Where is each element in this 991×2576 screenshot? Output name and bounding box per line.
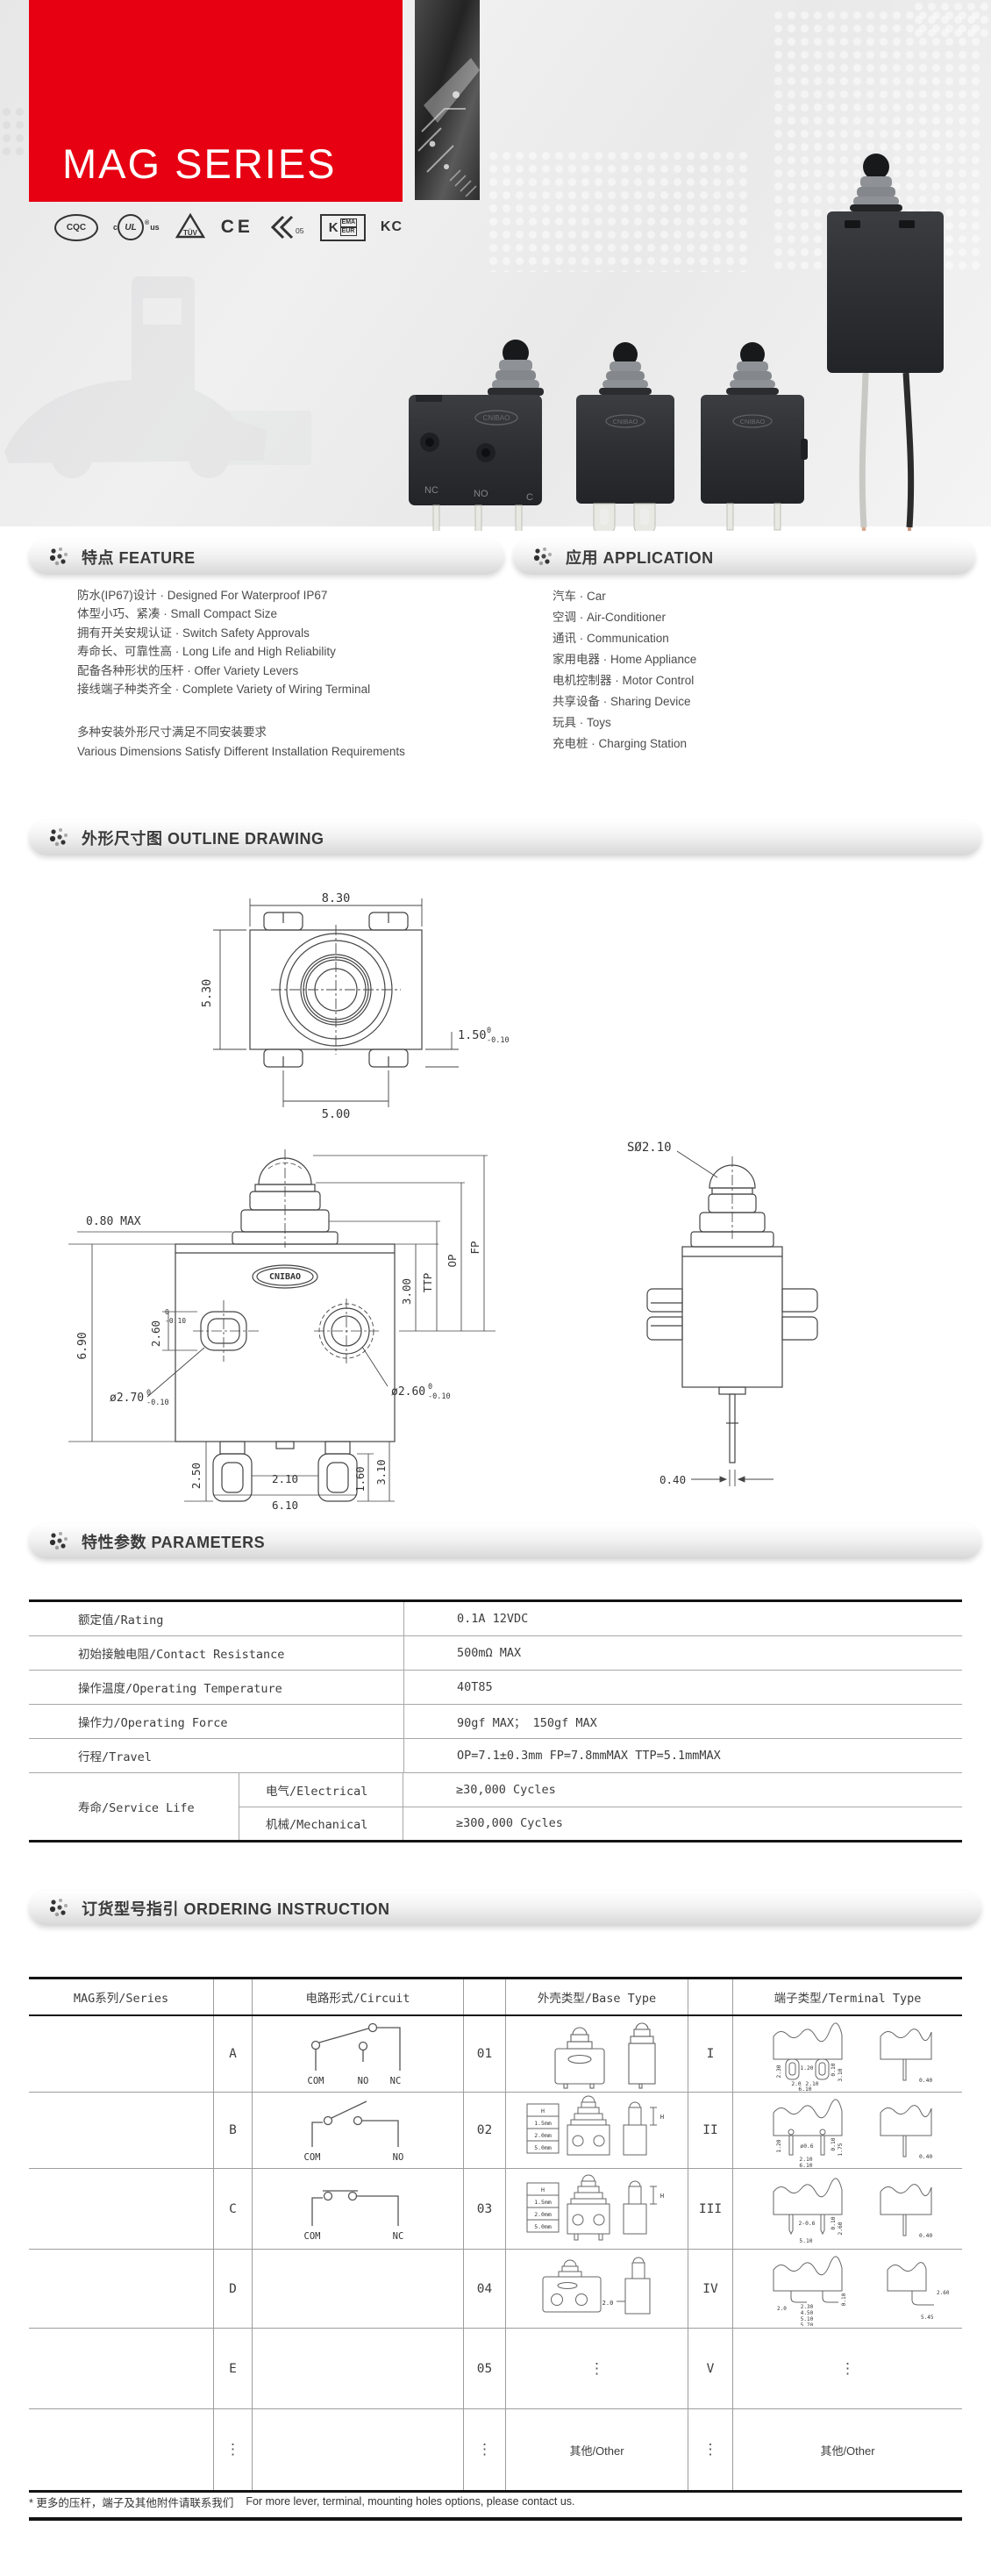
- svg-text:CNIBAO: CNIBAO: [269, 1272, 301, 1282]
- svg-text:1.5mm: 1.5mm: [534, 2120, 552, 2127]
- feature-note: 多种安装外形尺寸满足不同安装要求 Various Dimensions Sati…: [77, 723, 405, 762]
- svg-text:2.50: 2.50: [189, 1463, 203, 1489]
- parameters-table: 额定值/Rating 0.1A 12VDC 初始接触电阻/Contact Res…: [29, 1599, 962, 1843]
- svg-text:-0.10: -0.10: [146, 1399, 169, 1407]
- svg-text:0.40: 0.40: [919, 2078, 932, 2084]
- svg-text:-0.10: -0.10: [165, 1317, 186, 1325]
- application-item: 汽车 · Car: [553, 586, 696, 607]
- svg-text:2.0mm: 2.0mm: [534, 2211, 552, 2218]
- svg-text:NO: NO: [474, 489, 488, 499]
- svg-text:5.30: 5.30: [200, 979, 214, 1008]
- svg-text:SØ2.10: SØ2.10: [627, 1141, 672, 1155]
- kema-keur-logo-icon: K EMAEUR: [320, 214, 366, 241]
- svg-text:5.0mm: 5.0mm: [534, 2223, 552, 2230]
- svg-text:2.0mm: 2.0mm: [534, 2132, 552, 2139]
- svg-text:0.10: 0.10: [831, 2063, 837, 2076]
- svg-text:0: 0: [428, 1383, 432, 1392]
- svg-text:C: C: [526, 492, 533, 503]
- svg-text:2.30: 2.30: [800, 2304, 813, 2310]
- certification-logos: CQC c UL ® us TÜV CE 05 K EMAEUR: [54, 211, 403, 243]
- section-dots-icon: [48, 826, 71, 849]
- svg-text:0.40: 0.40: [659, 1473, 686, 1486]
- svg-text:2.0: 2.0: [602, 2300, 613, 2307]
- svg-text:5.10: 5.10: [800, 2316, 813, 2322]
- svg-text:CNIBAO: CNIBAO: [483, 414, 510, 422]
- faded-background-art: [0, 263, 377, 526]
- base-type-02-drawing: H 1.5mm 2.0mm 5.0mm H: [518, 2095, 676, 2165]
- terminal-type-3-drawing: 2-0.6 0.10 2.60 5.10 0.40: [747, 2172, 949, 2246]
- svg-text:5.10: 5.10: [799, 2238, 812, 2244]
- section-header-ordering: 订货型号指引 ORDERING INSTRUCTION: [29, 1891, 981, 1926]
- application-item: 通讯 · Communication: [553, 628, 696, 649]
- svg-text:05: 05: [296, 226, 304, 235]
- svg-text:-0.10: -0.10: [487, 1036, 510, 1045]
- svg-text:5.00: 5.00: [322, 1107, 351, 1121]
- svg-text:NO: NO: [393, 2152, 404, 2163]
- outline-side-view: SØ2.10 0.40: [579, 1125, 895, 1506]
- section-dots-icon: [48, 546, 71, 569]
- application-item: 共享设备 · Sharing Device: [553, 691, 696, 712]
- feature-item: 接线端子种类齐全 · Complete Variety of Wiring Te…: [77, 680, 370, 698]
- svg-text:COM: COM: [304, 2231, 321, 2242]
- base-type-01-drawing: [518, 2019, 676, 2089]
- ordering-row-a: A COM NO NC 01: [29, 2016, 962, 2093]
- outline-title: 外形尺寸图 OUTLINE DRAWING: [82, 826, 324, 849]
- ordering-title: 订货型号指引 ORDERING INSTRUCTION: [82, 1897, 390, 1920]
- ce-logo-icon: CE: [221, 217, 253, 238]
- svg-text:5.70: 5.70: [800, 2322, 813, 2326]
- section-header-feature: 特点 FEATURE: [29, 540, 504, 575]
- svg-text:4.50: 4.50: [800, 2310, 813, 2316]
- feature-list: 防水(IP67)设计 · Designed For Waterproof IP6…: [77, 586, 370, 698]
- svg-text:6.90: 6.90: [76, 1332, 89, 1359]
- feature-item: 拥有开关安规认证 · Switch Safety Approvals: [77, 624, 370, 642]
- svg-text:1.5mm: 1.5mm: [534, 2199, 552, 2206]
- svg-text:COM: COM: [304, 2152, 321, 2163]
- svg-text:3.00: 3.00: [400, 1278, 413, 1305]
- svg-text:8.30: 8.30: [322, 891, 351, 905]
- svg-text:H: H: [659, 2114, 663, 2121]
- param-row-travel: 行程/Travel OP=7.1±0.3mm FP=7.8mmMAX TTP=5…: [29, 1739, 962, 1773]
- ordering-row-d: D 04 2.0 IV: [29, 2250, 962, 2329]
- parameters-title: 特性参数 PARAMETERS: [82, 1530, 265, 1553]
- svg-text:2-0.6: 2-0.6: [798, 2221, 815, 2227]
- ordering-row-e: E 05 ⋮ V ⋮: [29, 2329, 962, 2409]
- feature-item: 体型小巧、紧凑 · Small Compact Size: [77, 605, 370, 623]
- header-band: MAG SERIES CQC: [0, 0, 991, 526]
- svg-text:0.10: 0.10: [831, 2216, 837, 2229]
- svg-text:1.20: 1.20: [800, 2065, 813, 2072]
- svg-text:ø2.60: ø2.60: [391, 1385, 425, 1399]
- cqc-logo-icon: CQC: [54, 214, 98, 241]
- param-row-service-life: 寿命/Service Life 电气/Electrical ≥30,000 Cy…: [29, 1773, 962, 1840]
- svg-text:6.10: 6.10: [798, 2086, 811, 2091]
- svg-text:NC: NC: [390, 2076, 402, 2086]
- svg-text:0.10: 0.10: [841, 2293, 847, 2306]
- svg-text:5.0mm: 5.0mm: [534, 2144, 552, 2151]
- svg-text:2.60: 2.60: [149, 1320, 162, 1347]
- svg-text:-0.10: -0.10: [428, 1392, 451, 1401]
- svg-text:1.50: 1.50: [458, 1028, 487, 1042]
- svg-text:2.60: 2.60: [937, 2290, 949, 2296]
- ordering-header-row: MAG系列/Series 电路形式/Circuit 外壳类型/Base Type…: [29, 1979, 962, 2016]
- service-life-mechanical: 机械/Mechanical ≥300,000 Cycles: [239, 1807, 962, 1841]
- product-photos: CNIBAO NC NO C: [377, 140, 956, 531]
- param-row-rating: 额定值/Rating 0.1A 12VDC: [29, 1602, 962, 1636]
- switch-photo-4: [827, 154, 944, 531]
- svg-text:6.10: 6.10: [799, 2163, 812, 2167]
- terminal-type-1-drawing: 2.30 1.20 0.10 3.10 2.0 2.10 6.10 0.40: [747, 2017, 949, 2091]
- svg-text:NC: NC: [393, 2231, 404, 2242]
- ordering-row-b: B COM NO 02: [29, 2093, 962, 2169]
- svg-text:1.20: 1.20: [776, 2139, 782, 2152]
- svg-text:0.40: 0.40: [919, 2154, 932, 2160]
- section-header-outline: 外形尺寸图 OUTLINE DRAWING: [29, 820, 981, 855]
- feature-title: 特点 FEATURE: [82, 546, 196, 569]
- svg-text:0: 0: [487, 1027, 491, 1035]
- svg-text:NO: NO: [358, 2076, 369, 2086]
- svg-text:5.45: 5.45: [921, 2315, 934, 2321]
- base-type-03-drawing: H 1.5mm 2.0mm 5.0mm H: [518, 2174, 676, 2244]
- emark-logo-icon: 05: [268, 214, 305, 240]
- switch-photo-2: CNIBAO: [576, 342, 674, 531]
- ul-logo-icon: c UL ® us: [113, 214, 160, 240]
- footer-note: * 更多的压杆，端子及其他附件请联系我们 For more lever, ter…: [29, 2486, 962, 2521]
- terminal-type-2-drawing: 1.20 ø0.6 0.10 1.75 2.10 6.10 0.40: [747, 2093, 949, 2167]
- svg-text:0: 0: [165, 1308, 169, 1316]
- application-list: 汽车 · Car 空调 · Air-Conditioner 通讯 · Commu…: [553, 586, 696, 755]
- application-item: 家用电器 · Home Appliance: [553, 649, 696, 670]
- svg-text:3.10: 3.10: [375, 1460, 388, 1485]
- outline-front-view: CNIBAO 0.80 MAX 6.90 2.60 0 -0.10 ø2.70 …: [61, 1134, 500, 1513]
- feature-item: 防水(IP67)设计 · Designed For Waterproof IP6…: [77, 586, 370, 605]
- svg-text:TTP: TTP: [421, 1273, 434, 1293]
- svg-text:6.10: 6.10: [272, 1499, 298, 1512]
- ordering-table: MAG系列/Series 电路形式/Circuit 外壳类型/Base Type…: [29, 1977, 962, 2493]
- svg-text:0.40: 0.40: [919, 2233, 932, 2239]
- svg-text:1.75: 1.75: [838, 2143, 844, 2156]
- svg-text:H: H: [541, 2186, 545, 2193]
- application-title: 应用 APPLICATION: [566, 546, 714, 569]
- switch-photo-1: CNIBAO NC NO C: [409, 340, 544, 531]
- svg-text:1.60: 1.60: [354, 1467, 367, 1492]
- param-row-operating-temperature: 操作温度/Operating Temperature 40T85: [29, 1671, 962, 1705]
- param-row-contact-resistance: 初始接触电阻/Contact Resistance 500mΩ MAX: [29, 1636, 962, 1671]
- svg-text:H: H: [659, 2193, 663, 2200]
- svg-text:2.10: 2.10: [799, 2157, 812, 2163]
- terminal-type-4-drawing: 2.0 0.10 2.30 4.50 5.10 5.70 2.60 5.45: [747, 2252, 949, 2326]
- outline-top-view: 8.30 5.30 5.00 1.50 0 -0.10: [162, 888, 513, 1127]
- svg-text:FP: FP: [468, 1241, 481, 1254]
- svg-text:2.0: 2.0: [777, 2306, 787, 2312]
- ordering-row-c: C COM NC 03: [29, 2169, 962, 2250]
- ordering-row-other: ⋮ ⋮ 其他/Other ⋮ 其他/Other: [29, 2409, 962, 2490]
- series-title: MAG SERIES: [62, 140, 337, 188]
- red-title-banner: MAG SERIES: [29, 0, 403, 202]
- svg-text:NC: NC: [424, 485, 438, 496]
- application-item: 充电桩 · Charging Station: [553, 733, 696, 755]
- svg-text:ø0.6: ø0.6: [800, 2143, 813, 2150]
- base-type-04-drawing: 2.0: [518, 2254, 676, 2324]
- application-item: 电机控制器 · Motor Control: [553, 670, 696, 691]
- section-dots-icon: [48, 1530, 71, 1553]
- circuit-spdt-diagram: COM NO NC: [270, 2020, 446, 2088]
- section-dots-icon: [532, 546, 555, 569]
- feature-item: 寿命长、可靠性高 · Long Life and High Reliabilit…: [77, 642, 370, 661]
- svg-text:ø2.70: ø2.70: [110, 1392, 144, 1405]
- ellipsis: ⋮: [733, 2329, 962, 2408]
- circuit-spst-no-diagram: COM NO: [270, 2096, 446, 2165]
- ellipsis: ⋮: [506, 2329, 688, 2408]
- svg-text:0.80 MAX: 0.80 MAX: [86, 1215, 141, 1228]
- section-header-parameters: 特性参数 PARAMETERS: [29, 1524, 981, 1559]
- svg-text:0.10: 0.10: [831, 2137, 837, 2150]
- switch-photo-3: CNIBAO: [701, 342, 808, 530]
- svg-text:2.30: 2.30: [776, 2064, 782, 2078]
- param-row-operating-force: 操作力/Operating Force 90gf MAX； 150gf MAX: [29, 1705, 962, 1739]
- datasheet-page: MAG SERIES CQC: [0, 0, 991, 2576]
- svg-text:TÜV: TÜV: [183, 229, 198, 237]
- application-item: 玩具 · Toys: [553, 712, 696, 733]
- section-header-application: 应用 APPLICATION: [513, 540, 975, 575]
- application-item: 空调 · Air-Conditioner: [553, 607, 696, 628]
- svg-text:3.10: 3.10: [838, 2068, 844, 2081]
- service-life-electrical: 电气/Electrical ≥30,000 Cycles: [239, 1773, 962, 1807]
- svg-text:OP: OP: [446, 1254, 459, 1267]
- svg-text:COM: COM: [308, 2076, 324, 2086]
- dot-pattern: [912, 0, 991, 39]
- svg-text:2.10: 2.10: [272, 1472, 298, 1485]
- feature-item: 配备各种形状的压杆 · Offer Variety Levers: [77, 662, 370, 680]
- svg-text:CNIBAO: CNIBAO: [613, 418, 638, 426]
- circuit-spst-nc-diagram: COM NC: [270, 2175, 446, 2243]
- svg-text:2.60: 2.60: [838, 2222, 844, 2235]
- svg-text:H: H: [541, 2107, 545, 2114]
- tuv-logo-icon: TÜV: [175, 213, 206, 241]
- svg-text:CNIBAO: CNIBAO: [740, 418, 766, 426]
- section-dots-icon: [48, 1897, 71, 1920]
- svg-text:0: 0: [146, 1389, 151, 1398]
